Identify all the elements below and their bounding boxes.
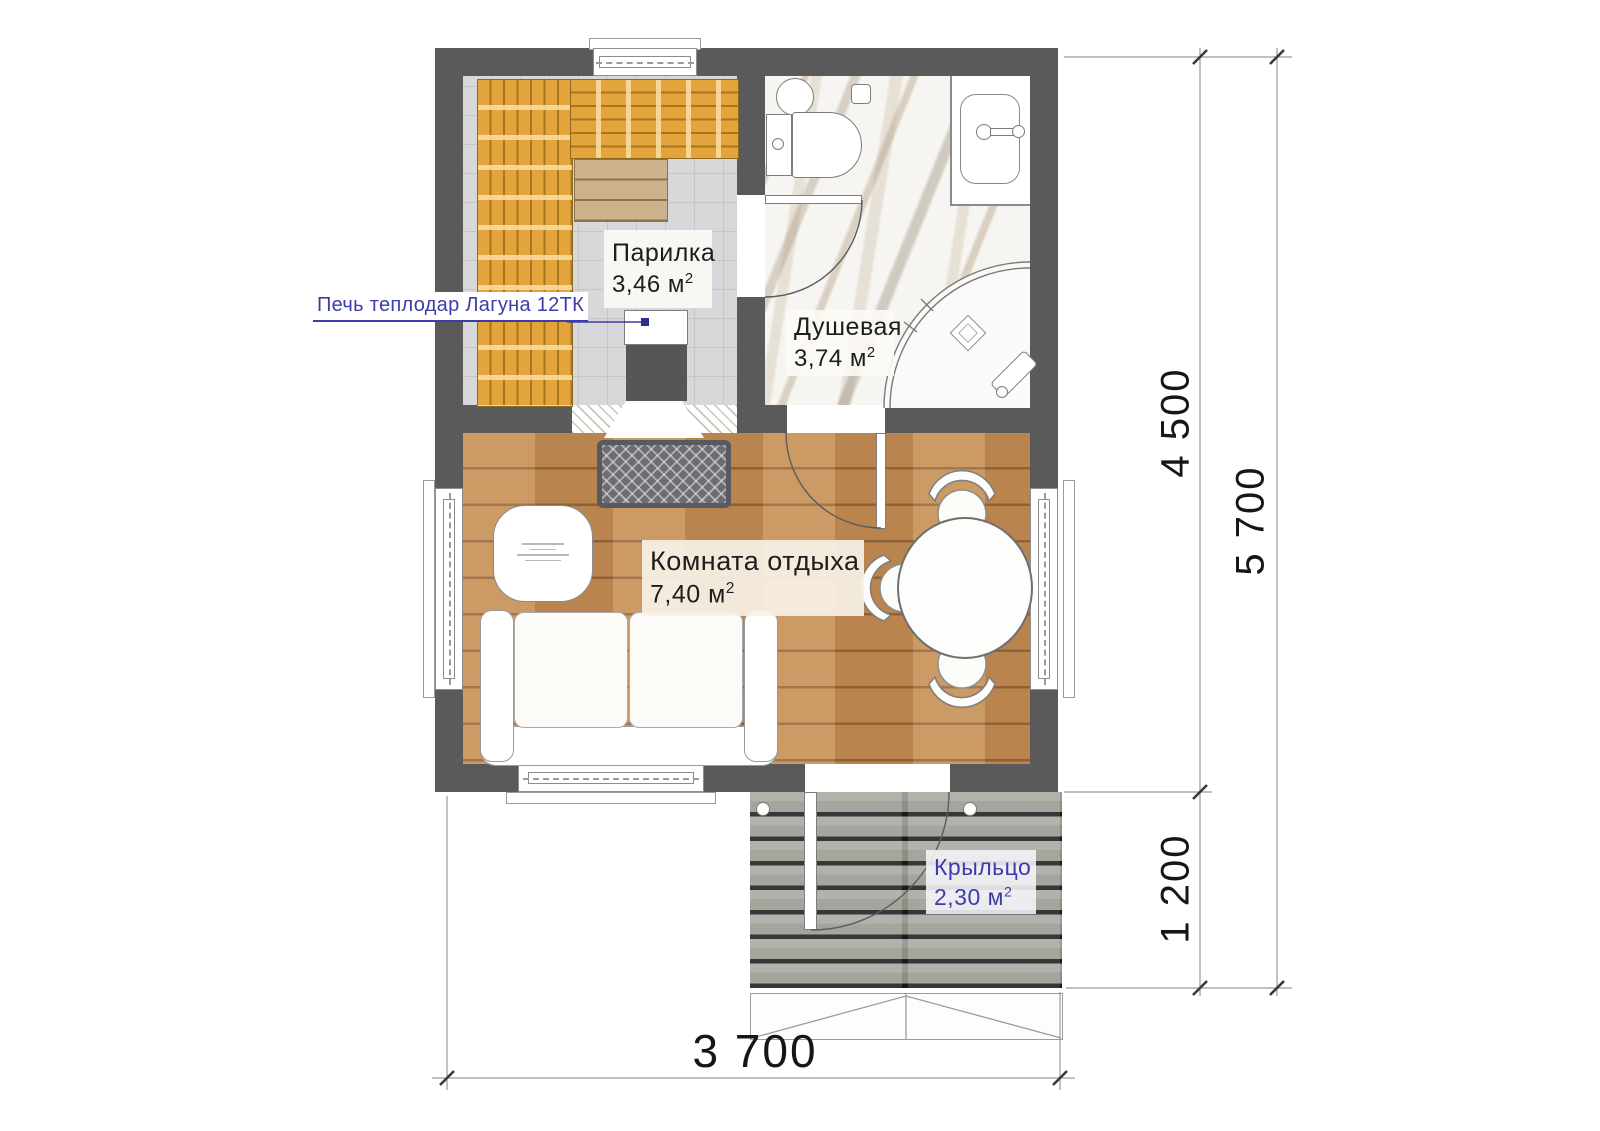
sofa-cushion-right bbox=[629, 612, 743, 728]
window-bottom bbox=[518, 764, 704, 792]
room-label-parilka: Парилка 3,46 м2 bbox=[604, 230, 712, 308]
room-area-value: 3,74 м bbox=[794, 345, 867, 372]
window-top bbox=[593, 48, 697, 76]
door-leaf-entry bbox=[804, 792, 817, 930]
window-left bbox=[435, 488, 463, 690]
room-area: 2,30 м2 bbox=[934, 884, 1012, 911]
sink-faucet-spout bbox=[990, 128, 1014, 136]
room-name: Комната отдыха bbox=[650, 546, 860, 577]
room-name: Душевая bbox=[794, 313, 902, 342]
room-area-value: 3,46 м bbox=[612, 271, 685, 298]
door-gap-entry bbox=[805, 764, 950, 792]
room-label-dushevaya: Душевая 3,74 м2 bbox=[786, 310, 894, 376]
doormat bbox=[597, 440, 731, 508]
sauna-steps bbox=[574, 159, 668, 222]
room-label-komnata-otdyha: Комната отдыха 7,40 м2 bbox=[642, 540, 864, 616]
room-area-value: 2,30 м bbox=[934, 884, 1004, 910]
window-sill-right bbox=[1063, 480, 1075, 698]
window-right bbox=[1030, 488, 1058, 690]
sofa-cushion-left bbox=[514, 612, 628, 728]
dimension-height-main: 4 500 bbox=[1154, 343, 1199, 503]
room-label-kryltso: Крыльцо 2,30 м2 bbox=[926, 850, 1036, 914]
room-area-sup: 2 bbox=[726, 580, 735, 597]
room-area: 3,46 м2 bbox=[612, 271, 694, 299]
room-area-sup: 2 bbox=[1004, 884, 1012, 900]
toilet-bowl bbox=[792, 112, 862, 178]
room-area-sup: 2 bbox=[867, 345, 876, 361]
room-name: Крыльцо bbox=[934, 854, 1031, 881]
dimension-width-total: 3 700 bbox=[640, 1024, 870, 1078]
porch-post-left bbox=[756, 802, 770, 816]
door-leaf-sauna-shower bbox=[765, 195, 862, 204]
dimension-height-porch: 1 200 bbox=[1154, 809, 1199, 969]
wall-switch bbox=[851, 84, 871, 104]
toilet-cistern-cap bbox=[776, 78, 814, 116]
wall-divider-left bbox=[463, 405, 572, 433]
sink-basin bbox=[960, 94, 1020, 184]
toilet-flush-button bbox=[772, 138, 784, 150]
sofa-back bbox=[480, 726, 778, 766]
sauna-bench-top bbox=[570, 79, 739, 159]
wall-divider-mid bbox=[765, 405, 787, 433]
door-leaf-shower-rest bbox=[876, 433, 886, 529]
floor-plan: Парилка 3,46 м2 Душевая 3,74 м2 Комната … bbox=[0, 0, 1600, 1131]
room-name: Парилка bbox=[612, 239, 715, 268]
coffee-table-engraving bbox=[513, 543, 573, 561]
shower-caddy bbox=[996, 386, 1008, 398]
room-area-sup: 2 bbox=[685, 271, 694, 287]
sink-faucet-handle bbox=[1012, 125, 1025, 138]
door-gap-sauna-shower bbox=[737, 195, 765, 297]
dimension-height-total: 5 700 bbox=[1229, 441, 1274, 601]
window-sill-left bbox=[423, 480, 435, 698]
sofa-arm-right bbox=[744, 610, 778, 762]
stove-body bbox=[624, 310, 688, 345]
sauna-bench-left bbox=[477, 79, 573, 407]
wall-divider-right bbox=[885, 405, 1030, 433]
room-area-value: 7,40 м bbox=[650, 581, 726, 609]
stove-firebox bbox=[626, 345, 687, 401]
stove-label: Печь теплодар Лагуна 12ТК bbox=[313, 292, 588, 322]
room-area: 3,74 м2 bbox=[794, 345, 876, 373]
window-sill-bottom bbox=[506, 792, 716, 804]
room-area: 7,40 м2 bbox=[650, 580, 735, 609]
sofa-arm-left bbox=[480, 610, 514, 762]
porch-post-right bbox=[963, 802, 977, 816]
